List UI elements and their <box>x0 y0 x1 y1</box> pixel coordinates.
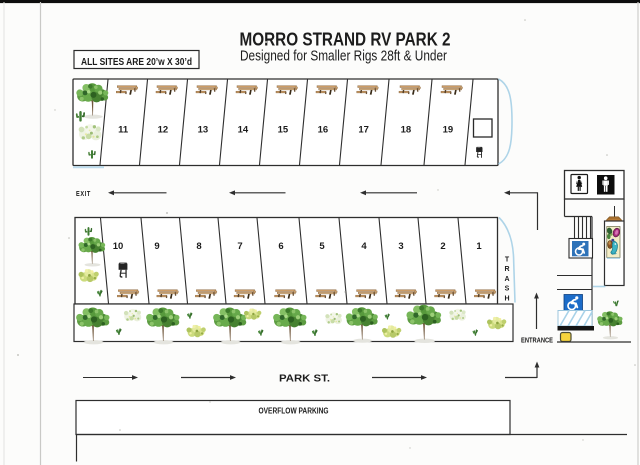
svg-text:1: 1 <box>476 241 482 252</box>
svg-text:15: 15 <box>278 125 289 136</box>
svg-text:2: 2 <box>440 241 445 252</box>
svg-text:18: 18 <box>401 125 412 136</box>
svg-text:EXIT: EXIT <box>76 191 91 198</box>
svg-text:S: S <box>505 286 510 293</box>
svg-text:10: 10 <box>113 241 124 252</box>
svg-text:4: 4 <box>361 241 367 252</box>
svg-text:16: 16 <box>318 125 329 136</box>
svg-text:7: 7 <box>237 241 242 252</box>
svg-text:R: R <box>504 266 509 273</box>
svg-text:MORRO STRAND RV PARK 2: MORRO STRAND RV PARK 2 <box>240 30 451 50</box>
svg-text:8: 8 <box>196 241 201 252</box>
svg-text:17: 17 <box>358 125 369 136</box>
svg-text:12: 12 <box>158 125 169 136</box>
svg-text:13: 13 <box>198 125 209 136</box>
svg-text:H: H <box>504 295 509 302</box>
svg-text:9: 9 <box>154 241 159 252</box>
svg-text:6: 6 <box>278 241 283 252</box>
svg-text:3: 3 <box>398 241 403 252</box>
svg-text:T: T <box>505 257 510 264</box>
svg-text:14: 14 <box>238 125 249 136</box>
svg-text:OVERFLOW PARKING: OVERFLOW PARKING <box>259 407 329 416</box>
svg-text:11: 11 <box>118 125 129 136</box>
svg-text:A: A <box>504 276 509 283</box>
svg-text:ALL SITES ARE 20’w X 30’d: ALL SITES ARE 20’w X 30’d <box>81 57 192 68</box>
svg-text:Designed for Smaller Rigs 28ft: Designed for Smaller Rigs 28ft & Under <box>240 49 447 65</box>
svg-text:5: 5 <box>319 241 325 252</box>
svg-text:ENTRANCE: ENTRANCE <box>521 338 553 345</box>
svg-text:PARK ST.: PARK ST. <box>279 373 330 385</box>
svg-text:19: 19 <box>443 125 454 136</box>
